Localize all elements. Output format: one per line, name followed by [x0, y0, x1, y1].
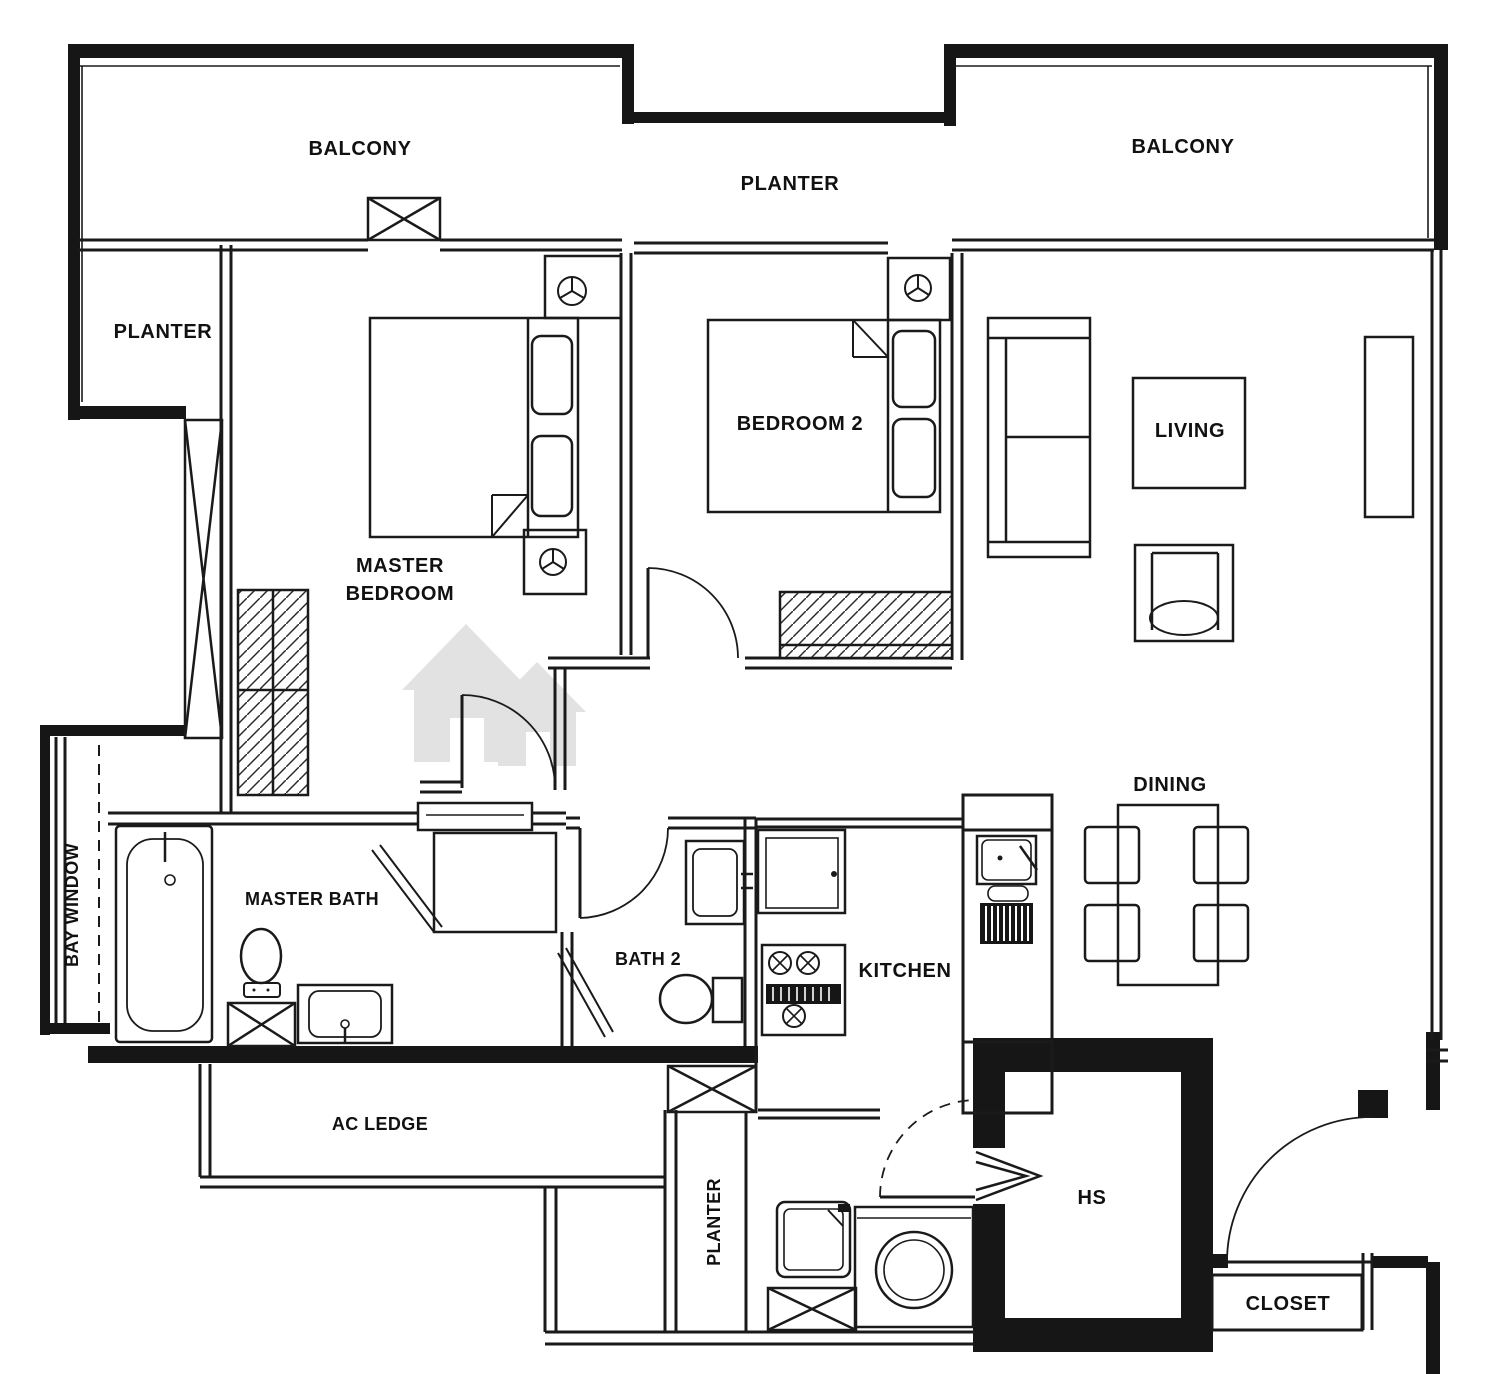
kitchen-yard-door-icon	[880, 1100, 977, 1197]
label-planter-bottom: PLANTER	[704, 1178, 724, 1266]
tv-console	[1365, 337, 1413, 517]
washing-machine-icon	[855, 1207, 973, 1327]
label-planter-left: PLANTER	[114, 321, 213, 343]
label-bath2: BATH 2	[615, 949, 681, 969]
bed-fold-corner	[853, 320, 888, 357]
column-shaft-icon	[185, 420, 222, 738]
dining-chair	[1085, 905, 1139, 961]
floor-plan-drawing: BALCONY PLANTER BALCONY PLANTER MASTER B…	[0, 0, 1488, 1374]
kitchen-fixtures	[758, 830, 845, 1035]
label-bay-window: BAY WINDOW	[62, 843, 82, 967]
vanity-counter	[418, 803, 532, 830]
label-closet: CLOSET	[1246, 1293, 1331, 1315]
pillow	[893, 419, 935, 497]
living-furniture	[988, 318, 1413, 641]
balcony-shaft-icon	[368, 198, 440, 240]
master-bath-shaft-icon	[228, 1003, 295, 1046]
yard-fixtures	[777, 1202, 973, 1327]
watermark-houses-icon	[402, 624, 586, 766]
sofa	[988, 318, 1090, 557]
bedroom2-furniture	[708, 258, 952, 658]
label-master-bedroom-2: BEDROOM	[346, 583, 455, 605]
label-hs: HS	[1078, 1187, 1107, 1209]
toilet-icon	[660, 975, 742, 1023]
label-kitchen: KITCHEN	[858, 960, 951, 982]
dish-rack-icon	[980, 903, 1033, 944]
label-balcony-right: BALCONY	[1131, 136, 1234, 158]
fan-coil-icon	[545, 256, 621, 318]
label-ac-ledge: AC LEDGE	[332, 1114, 428, 1134]
basin-icon	[298, 985, 392, 1043]
label-living: LIVING	[1155, 420, 1225, 442]
counter-sink-icon	[977, 836, 1037, 884]
fan-coil-icon	[888, 258, 950, 320]
bath2-door-icon	[580, 828, 668, 918]
master-wardrobe	[238, 590, 308, 795]
label-planter-top: PLANTER	[741, 173, 840, 195]
pillow	[532, 336, 572, 414]
dining-furniture	[1085, 805, 1248, 985]
yard-shaft-bottom-icon	[768, 1288, 856, 1330]
shower-stall	[434, 833, 556, 932]
pillow	[893, 331, 935, 407]
bedroom2-door-icon	[648, 568, 738, 658]
basin-icon	[686, 841, 753, 924]
toilet-icon	[241, 929, 281, 997]
master-shower-door-icon	[372, 845, 442, 932]
bed-fold-corner	[492, 495, 528, 537]
dining-table	[1118, 805, 1218, 985]
yard-sink-icon	[777, 1202, 850, 1277]
fan-coil-icon	[524, 530, 586, 594]
label-master-bath: MASTER BATH	[245, 889, 379, 909]
bathtub-icon	[116, 826, 212, 1042]
entry-door-icon	[1227, 1117, 1372, 1262]
stove-icon	[762, 945, 845, 1035]
dining-chair	[1194, 827, 1248, 883]
dining-chair	[1085, 827, 1139, 883]
bedroom2-wardrobe	[780, 592, 952, 658]
pillow	[532, 436, 572, 516]
master-bath-fixtures	[116, 803, 556, 1043]
soap-dish	[988, 886, 1028, 901]
bath2-shower-door-icon	[558, 948, 613, 1037]
label-bedroom2: BEDROOM 2	[737, 413, 864, 435]
bath2-fixtures	[660, 841, 753, 1023]
label-master-bedroom-1: MASTER	[356, 555, 444, 577]
floor-plan-page: BALCONY PLANTER BALCONY PLANTER MASTER B…	[0, 0, 1488, 1374]
yard-shaft-top-icon	[668, 1066, 756, 1112]
armchair	[1135, 545, 1233, 641]
master-bed	[370, 318, 578, 537]
kitchen-cabinet	[758, 830, 845, 913]
doors	[372, 568, 1372, 1262]
label-balcony-left: BALCONY	[308, 138, 411, 160]
label-dining: DINING	[1133, 774, 1207, 796]
dining-chair	[1194, 905, 1248, 961]
